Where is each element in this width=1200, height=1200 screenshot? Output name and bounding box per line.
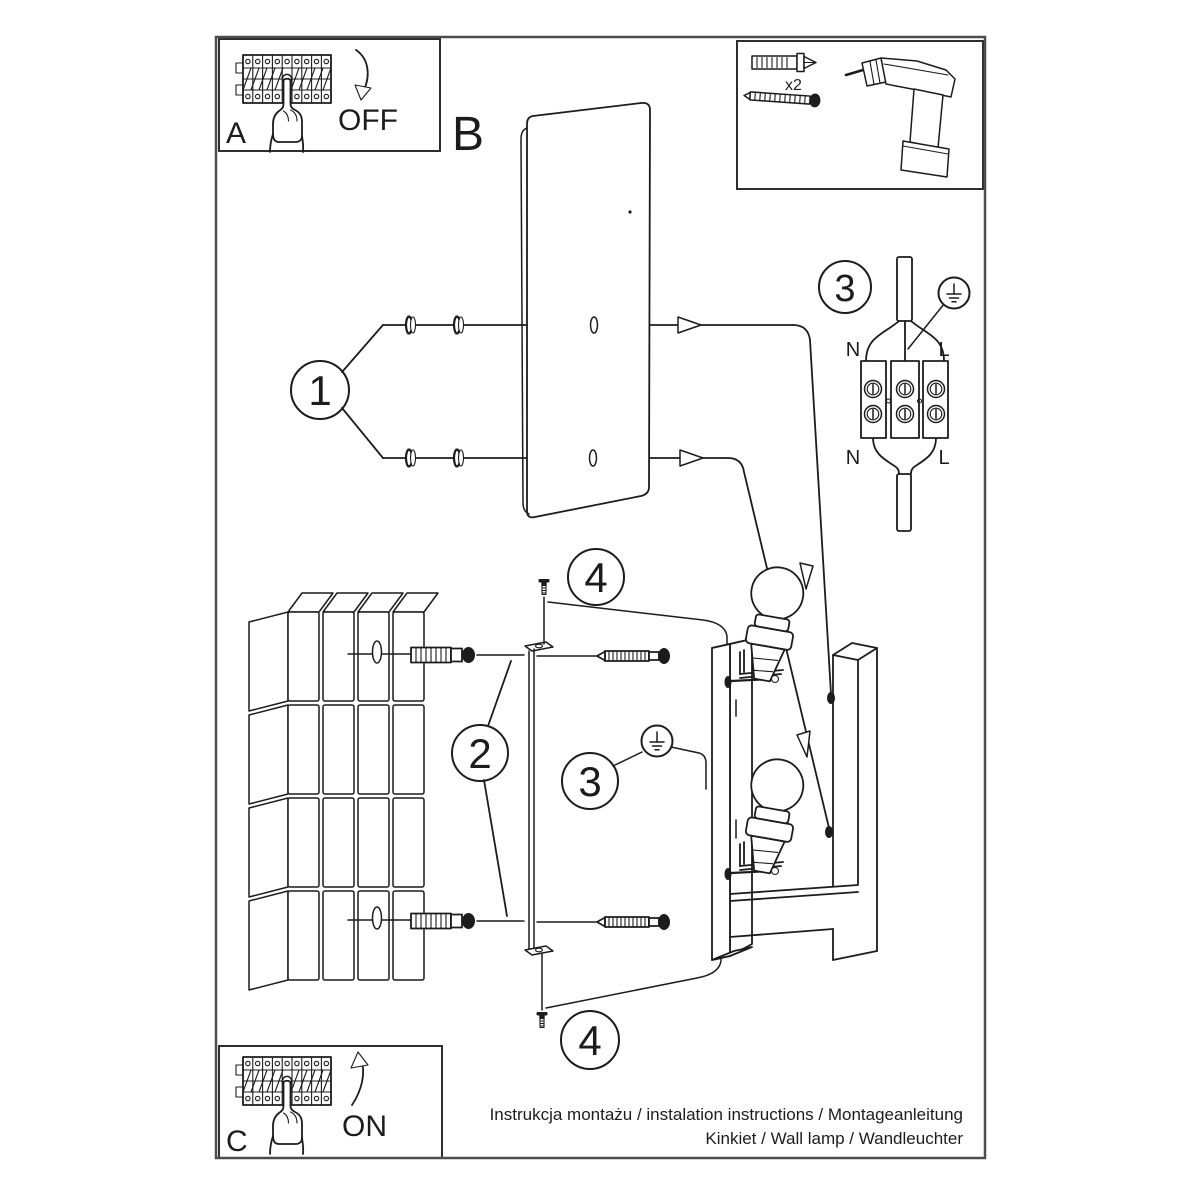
step-4-top-number: 4	[584, 554, 607, 601]
footer-title-line: Instrukcja montażu / instalation instruc…	[490, 1105, 963, 1124]
tiled-wall	[249, 593, 438, 990]
panel-c-label: C	[226, 1125, 248, 1158]
ground-symbol	[939, 278, 970, 309]
diagram-canvas: A OFF B x2 C ON 1 2 4 4 3 3 N L N L Inst…	[0, 0, 1200, 1200]
wire-label-l-top: L	[938, 339, 949, 361]
washers	[406, 317, 464, 467]
footer-product-line: Kinkiet / Wall lamp / Wandleuchter	[705, 1129, 963, 1148]
cover-pinhole	[628, 210, 631, 213]
off-arrow	[356, 50, 368, 90]
power-off-panel	[219, 39, 440, 152]
wire-label-n-top: N	[846, 339, 860, 361]
direction-arrows	[678, 317, 703, 466]
on-arrow-head	[351, 1052, 368, 1068]
wire-label-n-bottom: N	[846, 447, 860, 469]
step-3-wiring-number: 3	[834, 268, 855, 310]
wire-label-l-bottom: L	[938, 447, 949, 469]
power-on-panel	[219, 1046, 442, 1158]
cover-plate	[521, 103, 650, 518]
tools-panel	[737, 41, 983, 189]
screw-hole-bottom	[825, 826, 833, 838]
step-4-top	[539, 549, 728, 646]
step-3-ground-number: 3	[578, 758, 601, 805]
power-on-label: ON	[342, 1110, 387, 1143]
screw-icon	[744, 89, 821, 108]
off-arrow-head	[355, 85, 371, 100]
panel-a-label: A	[226, 117, 246, 150]
instruction-sheet: A OFF B x2 C ON 1 2 4 4 3 3 N L N L Inst…	[0, 0, 1200, 1200]
power-off-label: OFF	[338, 104, 398, 137]
screw-hole-top	[827, 692, 835, 704]
drill-hole-top	[373, 641, 382, 663]
wall-plug-icon	[752, 54, 816, 72]
mounting-bracket	[525, 642, 553, 955]
holder-nut-top	[772, 676, 779, 683]
dowel-count-label: x2	[785, 77, 802, 94]
step-1-number: 1	[308, 367, 331, 414]
screw-guides	[797, 563, 835, 838]
holder-nut-bottom	[772, 868, 779, 875]
step-2-number: 2	[468, 730, 491, 777]
drill-icon	[846, 58, 955, 177]
drill-hole-bottom	[373, 907, 382, 929]
step-4-bottom	[537, 953, 722, 1069]
panel-b-label: B	[452, 108, 484, 161]
step-2-callout	[452, 661, 511, 916]
step-4-bottom-number: 4	[578, 1017, 601, 1064]
